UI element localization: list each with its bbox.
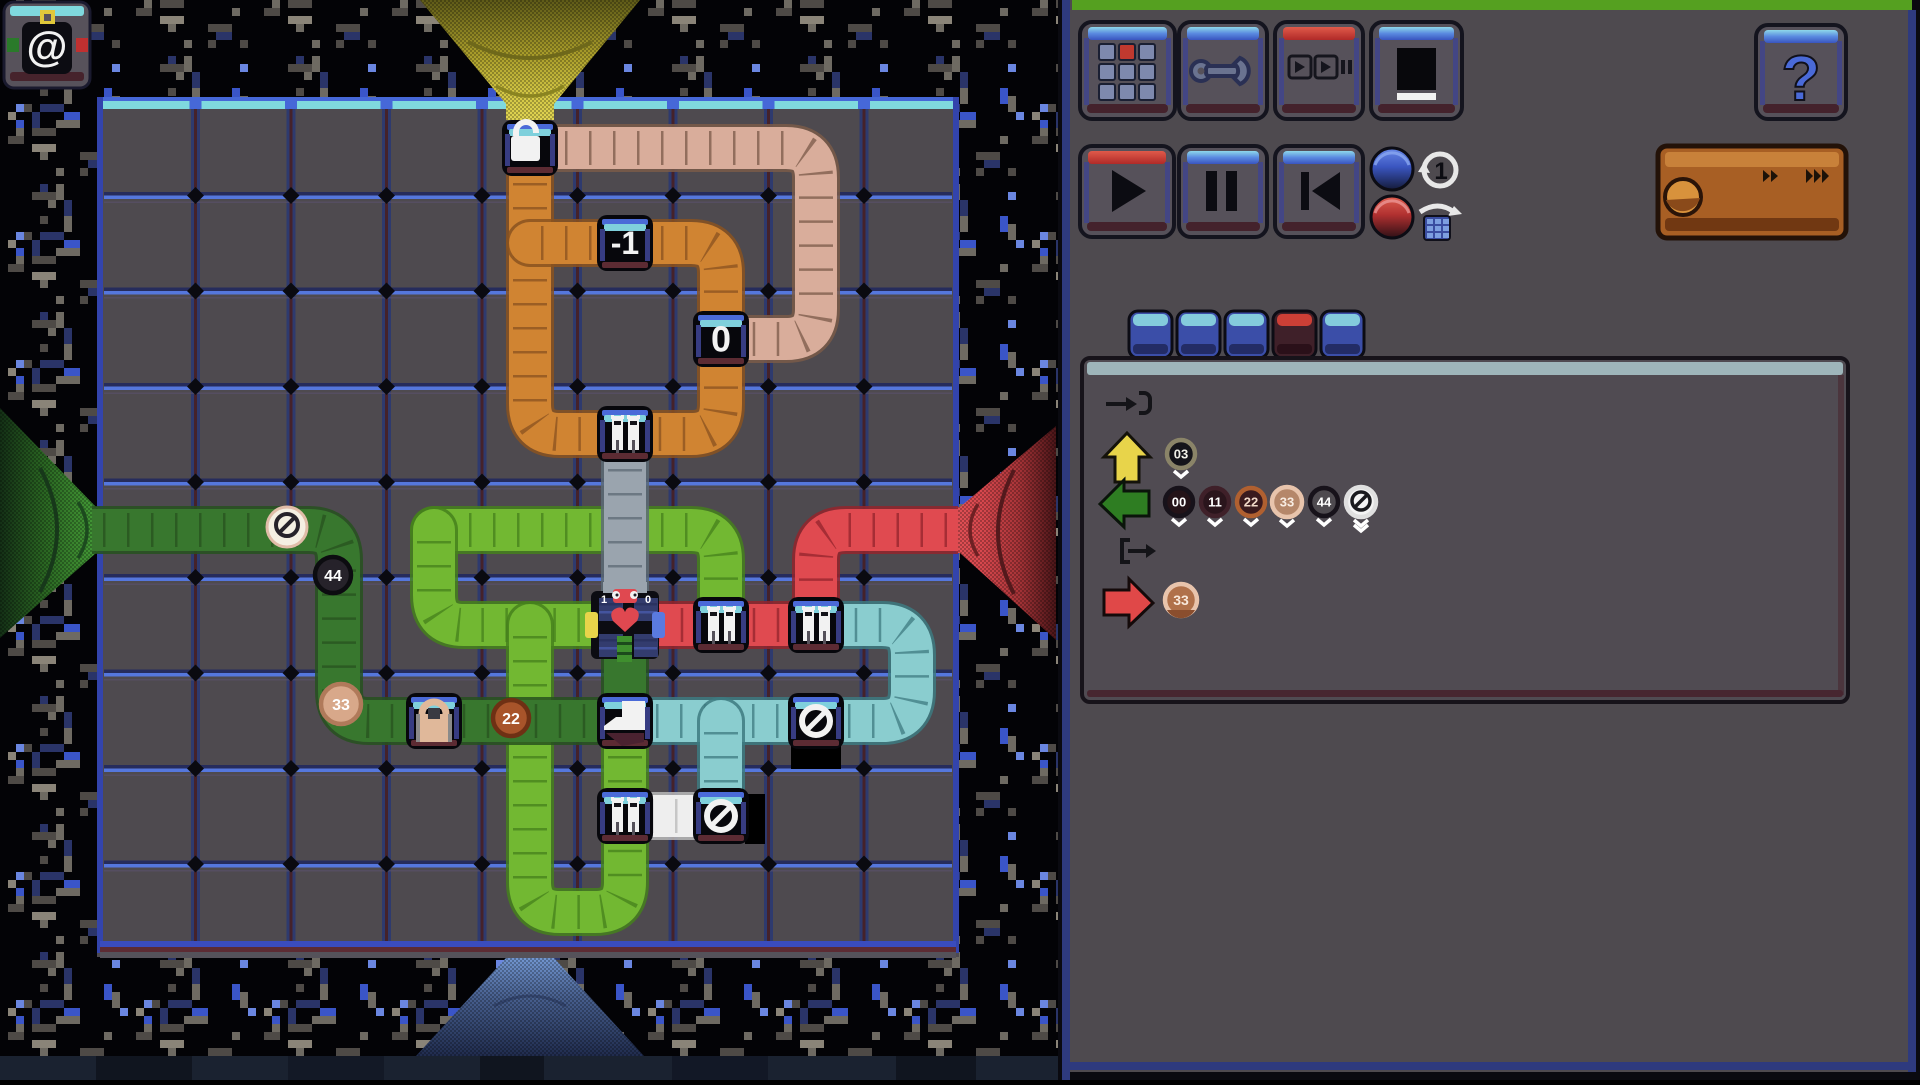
svg-text:1: 1 [1434,158,1447,185]
svg-text:33: 33 [1173,592,1189,608]
svg-text:11: 11 [1208,495,1222,510]
svg-text:00: 00 [1172,495,1186,510]
svg-text:22: 22 [1244,495,1258,510]
svg-text:1: 1 [601,594,607,606]
svg-text:44: 44 [1317,495,1332,510]
svg-text:44: 44 [324,568,342,585]
svg-text:?: ? [1781,42,1820,114]
svg-text:0: 0 [711,319,731,360]
svg-text:22: 22 [502,711,520,728]
svg-text:@: @ [27,23,68,70]
svg-text:0: 0 [645,594,651,606]
svg-text:03: 03 [1174,447,1188,462]
svg-text:33: 33 [332,697,350,714]
svg-text:-1: -1 [611,225,639,261]
svg-text:33: 33 [1280,495,1294,510]
